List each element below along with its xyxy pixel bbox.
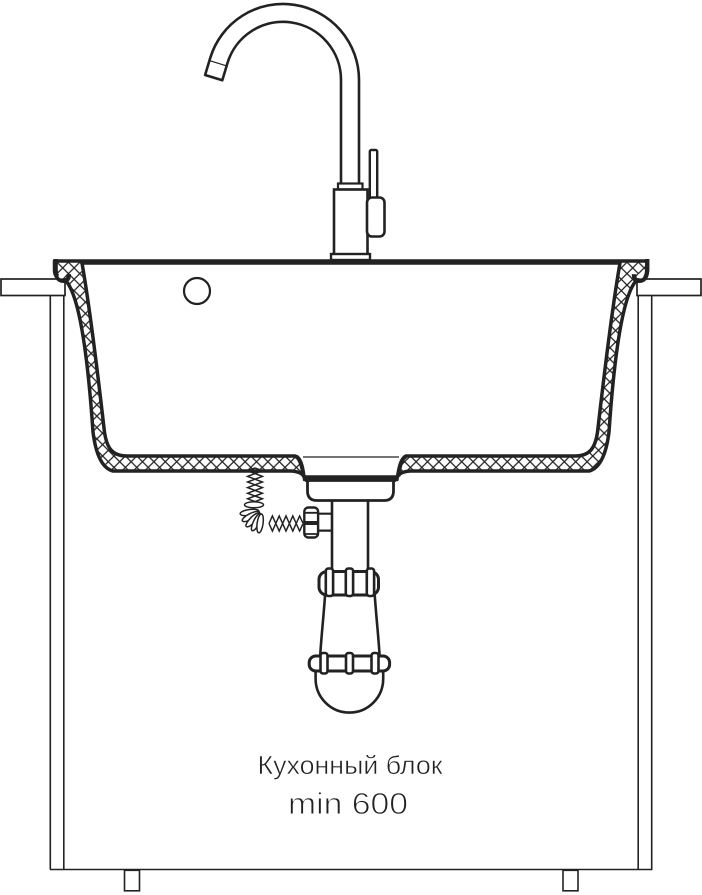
svg-text:Кухонный блок: Кухонный блок [258,750,444,780]
svg-text:min 600: min 600 [288,786,408,821]
